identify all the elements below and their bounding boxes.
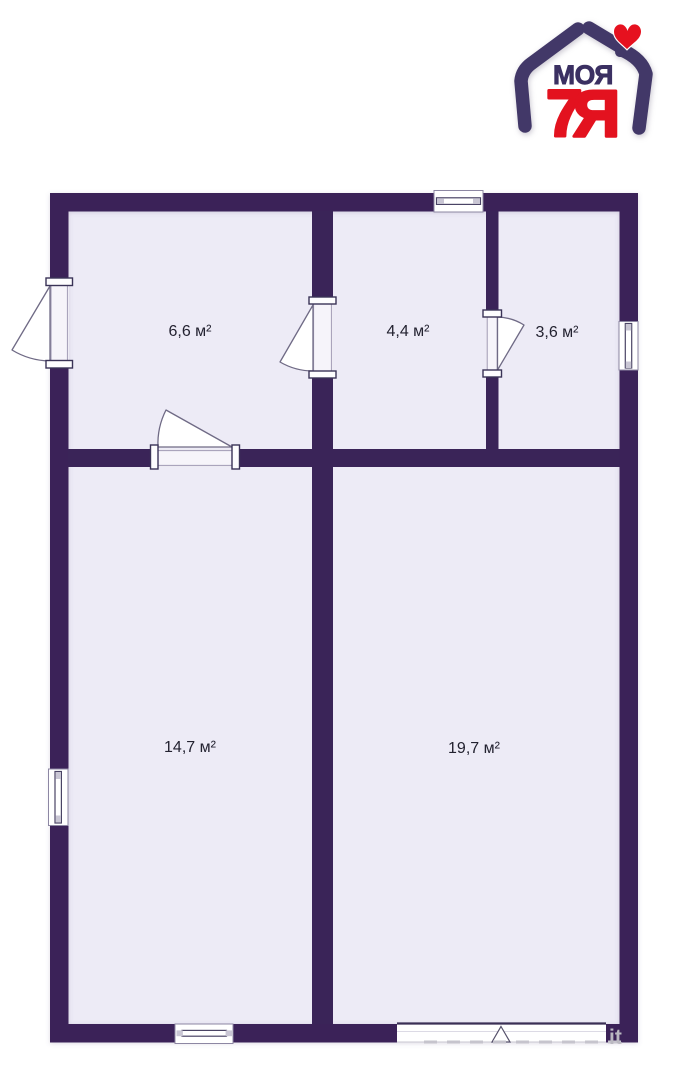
svg-text:4,4 м²: 4,4 м² [386, 323, 430, 340]
svg-text:6,6 м²: 6,6 м² [168, 323, 212, 340]
svg-text:7Я: 7Я [546, 76, 617, 150]
svg-text:3,6 м²: 3,6 м² [535, 324, 579, 341]
svg-text:19,7 м²: 19,7 м² [448, 740, 501, 757]
svg-text:it: it [609, 1026, 622, 1049]
svg-text:14,7 м²: 14,7 м² [164, 739, 217, 756]
